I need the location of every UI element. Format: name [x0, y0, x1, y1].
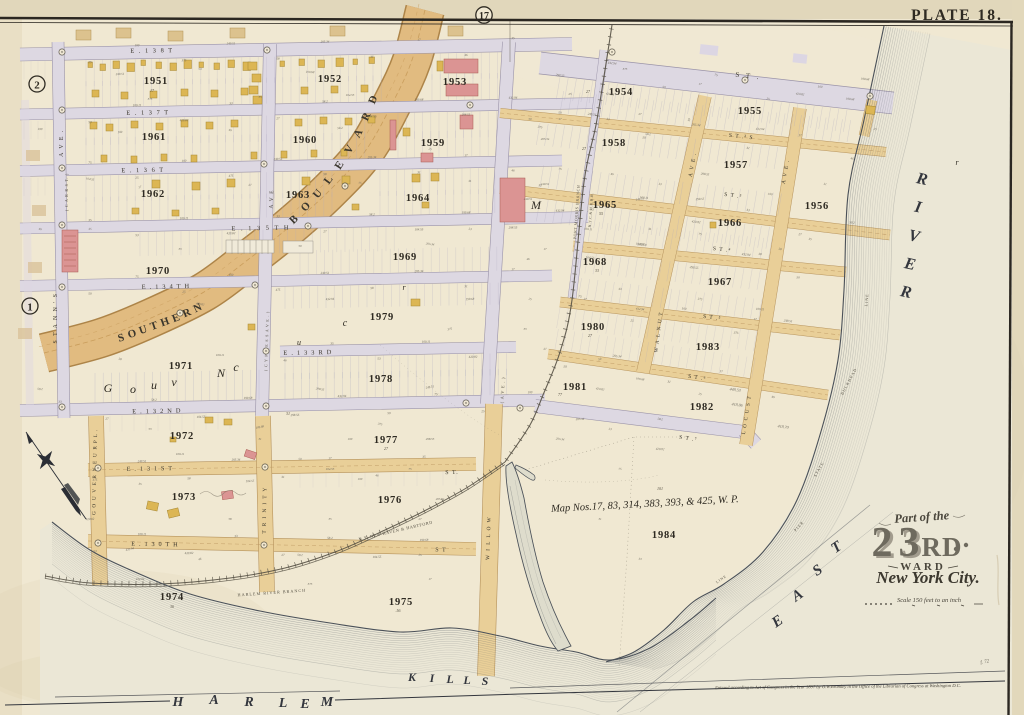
- svg-text:K: K: [407, 670, 417, 684]
- svg-text:35: 35: [422, 455, 426, 459]
- svg-text:New York City.: New York City.: [875, 568, 979, 587]
- svg-text:33: 33: [276, 214, 280, 218]
- svg-text:75: 75: [434, 392, 438, 396]
- svg-text:58.2: 58.2: [297, 553, 303, 557]
- svg-text:1975: 1975: [389, 597, 413, 608]
- svg-text:36: 36: [170, 604, 174, 609]
- svg-text:100: 100: [358, 477, 363, 481]
- svg-text:35: 35: [258, 95, 262, 99]
- svg-text:P L .: P L .: [93, 429, 99, 444]
- svg-text:249.51: 249.51: [138, 459, 147, 463]
- svg-text:53: 53: [135, 233, 139, 237]
- svg-text:33: 33: [595, 268, 599, 273]
- svg-text:1977: 1977: [374, 435, 398, 446]
- svg-text:1984: 1984: [652, 530, 676, 541]
- svg-text:2: 2: [872, 520, 893, 566]
- svg-text:2: 2: [34, 80, 40, 92]
- svg-text:17: 17: [464, 153, 468, 157]
- svg-text:375: 375: [308, 582, 313, 586]
- svg-text:58.2: 58.2: [322, 99, 328, 103]
- svg-text:1983: 1983: [696, 342, 720, 353]
- svg-text:E . 1 3 5 T H: E . 1 3 5 T H: [231, 224, 290, 232]
- svg-text:17: 17: [417, 38, 421, 42]
- svg-text:101: 101: [657, 486, 663, 491]
- svg-text:35: 35: [88, 218, 92, 222]
- svg-text:420.82: 420.82: [656, 447, 665, 451]
- svg-text:17: 17: [328, 456, 332, 460]
- svg-text:50: 50: [88, 292, 92, 296]
- svg-text:L: L: [445, 672, 453, 686]
- svg-text:58: 58: [187, 476, 191, 480]
- svg-text:58.2: 58.2: [327, 536, 333, 540]
- svg-text:298.55: 298.55: [291, 413, 300, 417]
- svg-text:375: 375: [698, 297, 703, 302]
- svg-text:1973: 1973: [172, 492, 196, 503]
- svg-text:75: 75: [135, 275, 139, 279]
- svg-text:1978: 1978: [369, 374, 393, 385]
- svg-text:S T A N N ' S: S T A N N ' S: [53, 293, 59, 344]
- svg-text:31: 31: [370, 55, 374, 59]
- svg-text:53: 53: [377, 357, 381, 361]
- svg-text:1: 1: [27, 302, 33, 314]
- svg-text:25: 25: [88, 60, 92, 64]
- svg-text:104.55: 104.55: [368, 114, 377, 118]
- svg-text:1956: 1956: [805, 201, 829, 212]
- svg-text:1967: 1967: [708, 277, 732, 288]
- svg-text:100: 100: [348, 437, 353, 441]
- svg-text:100: 100: [182, 159, 187, 163]
- svg-text:46: 46: [511, 168, 515, 172]
- svg-text:1970: 1970: [146, 266, 170, 277]
- svg-text:375: 375: [93, 478, 98, 482]
- svg-text:33: 33: [523, 327, 527, 331]
- svg-text:104.55: 104.55: [246, 479, 255, 483]
- svg-text:E . 1 3 1 S T: E . 1 3 1 S T: [127, 465, 174, 473]
- svg-text:104.55: 104.55: [346, 93, 355, 97]
- svg-text:( C A R R S T. ): ( C A R R S T. ): [64, 173, 69, 211]
- svg-text:46: 46: [283, 358, 287, 362]
- svg-text:M: M: [320, 695, 334, 710]
- svg-text:E . 1 3 2 N D: E . 1 3 2 N D: [132, 408, 182, 416]
- svg-text:31: 31: [281, 475, 285, 479]
- svg-text:375: 375: [623, 67, 628, 71]
- svg-text:50: 50: [558, 111, 562, 115]
- svg-text:31: 31: [464, 284, 468, 288]
- svg-text:100: 100: [38, 127, 43, 131]
- svg-text:100.11: 100.11: [133, 103, 142, 107]
- svg-text:199.68: 199.68: [466, 297, 475, 301]
- svg-text:100: 100: [118, 130, 123, 134]
- svg-text:58.2: 58.2: [849, 220, 855, 225]
- svg-text:298.55: 298.55: [509, 225, 518, 229]
- svg-text:31: 31: [258, 437, 262, 441]
- svg-text:46: 46: [464, 53, 468, 57]
- svg-text:S T: S T: [435, 547, 447, 553]
- svg-text:58.2: 58.2: [151, 398, 157, 402]
- svg-text:o: o: [130, 382, 136, 396]
- svg-text:432.94: 432.94: [326, 297, 335, 301]
- svg-text:46: 46: [526, 257, 530, 261]
- svg-text:375: 375: [229, 174, 234, 178]
- svg-text:31: 31: [286, 411, 290, 416]
- svg-text:104.55: 104.55: [326, 467, 335, 471]
- svg-text:205.34: 205.34: [321, 40, 330, 44]
- svg-text:199.68: 199.68: [420, 538, 429, 542]
- svg-text:375: 375: [276, 288, 281, 292]
- svg-text:1955: 1955: [738, 106, 762, 117]
- svg-text:104.55: 104.55: [373, 555, 382, 559]
- svg-text:375: 375: [182, 58, 187, 62]
- svg-text:375: 375: [734, 331, 740, 336]
- svg-text:104.55: 104.55: [197, 415, 206, 419]
- svg-text:1969: 1969: [393, 252, 417, 263]
- svg-text:298.55: 298.55: [696, 197, 705, 201]
- svg-text:249.51: 249.51: [274, 157, 283, 161]
- svg-text:17: 17: [543, 247, 547, 251]
- svg-text:1960: 1960: [293, 135, 317, 146]
- svg-text:420.82: 420.82: [469, 355, 478, 359]
- svg-text:100.11: 100.11: [756, 307, 765, 311]
- svg-text:249.51: 249.51: [116, 72, 125, 76]
- svg-text:375: 375: [148, 97, 153, 101]
- svg-text:420.82: 420.82: [180, 118, 189, 122]
- svg-text:432.94: 432.94: [756, 127, 765, 131]
- svg-text:.56: .56: [396, 608, 401, 613]
- svg-text:1951: 1951: [144, 76, 168, 87]
- svg-text:25: 25: [135, 176, 139, 180]
- svg-text:58: 58: [276, 57, 280, 61]
- svg-text:199.68: 199.68: [306, 70, 315, 74]
- svg-text:249.51: 249.51: [524, 197, 533, 201]
- svg-text:432.94: 432.94: [136, 577, 145, 581]
- svg-text:17: 17: [511, 267, 515, 271]
- svg-text:c: c: [343, 318, 348, 329]
- svg-text:58.2: 58.2: [337, 126, 343, 130]
- svg-text:375: 375: [538, 125, 544, 130]
- svg-text:199.68: 199.68: [415, 97, 424, 101]
- svg-text:1982: 1982: [690, 402, 714, 413]
- svg-text:199.68: 199.68: [462, 210, 471, 214]
- svg-text:205.34: 205.34: [541, 137, 550, 141]
- svg-text:58.2: 58.2: [37, 387, 43, 391]
- svg-text:1971: 1971: [169, 361, 193, 372]
- svg-text:58: 58: [228, 517, 232, 521]
- svg-text:58: 58: [370, 286, 374, 290]
- svg-text:35: 35: [511, 36, 515, 40]
- svg-text:1965: 1965: [593, 200, 617, 211]
- svg-text:100.11: 100.11: [422, 340, 431, 344]
- svg-text:75: 75: [408, 467, 412, 471]
- svg-text:1953: 1953: [443, 77, 467, 88]
- svg-text:205.34: 205.34: [232, 458, 241, 462]
- svg-text:L: L: [278, 696, 288, 711]
- svg-text:53: 53: [93, 549, 97, 553]
- svg-text:1980: 1980: [581, 322, 605, 333]
- svg-text:46: 46: [375, 473, 379, 477]
- svg-text:E: E: [299, 697, 309, 712]
- svg-text:298.55: 298.55: [426, 437, 435, 441]
- svg-text:A: A: [208, 693, 218, 708]
- svg-text:50: 50: [528, 117, 532, 121]
- svg-text:1959: 1959: [421, 138, 445, 149]
- svg-text:53: 53: [148, 427, 152, 431]
- svg-text:31: 31: [598, 517, 602, 521]
- svg-text:1958: 1958: [602, 138, 626, 149]
- svg-text:432.94: 432.94: [556, 208, 565, 212]
- svg-text:432.94: 432.94: [338, 394, 347, 398]
- svg-text:249.51: 249.51: [321, 271, 330, 275]
- svg-text:75: 75: [88, 161, 92, 165]
- svg-text:25: 25: [568, 92, 572, 96]
- svg-text:100: 100: [682, 306, 688, 311]
- svg-text:S: S: [482, 674, 489, 688]
- svg-text:55: 55: [599, 211, 603, 216]
- svg-text:420.82: 420.82: [185, 551, 194, 555]
- svg-text:205.34: 205.34: [576, 417, 585, 421]
- svg-text:1972: 1972: [170, 431, 194, 442]
- svg-text:E . 1 3 0 T H: E . 1 3 0 T H: [131, 541, 179, 549]
- svg-text:A V E .: A V E .: [59, 129, 65, 157]
- svg-text:205.34: 205.34: [368, 155, 377, 159]
- svg-text:27: 27: [281, 553, 285, 557]
- svg-text:v: v: [171, 375, 177, 389]
- svg-text:249.51: 249.51: [227, 41, 236, 45]
- svg-text:1952: 1952: [318, 74, 342, 85]
- svg-text:298.55: 298.55: [462, 113, 471, 117]
- svg-text:100.11: 100.11: [216, 353, 225, 357]
- svg-text:50: 50: [298, 244, 302, 248]
- svg-text:33: 33: [229, 101, 233, 105]
- svg-text:35: 35: [328, 517, 332, 521]
- svg-text:27: 27: [105, 417, 109, 421]
- svg-text:35: 35: [330, 341, 334, 345]
- svg-text:1961: 1961: [142, 132, 166, 143]
- svg-text:1979: 1979: [370, 312, 394, 323]
- svg-text:58: 58: [323, 172, 327, 176]
- svg-text:104.55: 104.55: [415, 227, 424, 231]
- svg-text:58.2: 58.2: [645, 132, 651, 137]
- svg-text:H: H: [172, 695, 185, 710]
- svg-text:100: 100: [768, 192, 773, 197]
- svg-text:33: 33: [58, 400, 62, 404]
- svg-text:E . 1 3 8 T: E . 1 3 8 T: [130, 47, 173, 55]
- svg-text:S T.: S T.: [445, 470, 459, 476]
- svg-text:1966: 1966: [718, 218, 742, 229]
- svg-text:1957: 1957: [724, 160, 748, 171]
- svg-text:1981: 1981: [563, 382, 587, 393]
- svg-text:u: u: [297, 338, 301, 347]
- svg-text:100.11: 100.11: [176, 452, 185, 456]
- svg-text:432.94: 432.94: [509, 96, 518, 100]
- svg-text:100: 100: [528, 390, 533, 394]
- svg-text:205.34: 205.34: [436, 497, 445, 501]
- svg-text:25: 25: [182, 290, 186, 294]
- svg-text:31: 31: [417, 170, 421, 174]
- svg-text:420.82: 420.82: [86, 517, 95, 521]
- svg-text:N: N: [216, 366, 226, 380]
- svg-text:A V E: A V E: [269, 189, 276, 208]
- svg-text:1964: 1964: [406, 193, 430, 204]
- svg-text:1963: 1963: [286, 190, 310, 201]
- svg-text:27: 27: [276, 116, 280, 120]
- svg-text:27: 27: [323, 229, 327, 233]
- svg-text:17: 17: [558, 117, 562, 121]
- svg-text:100.11: 100.11: [138, 532, 147, 536]
- svg-text:100: 100: [229, 273, 234, 277]
- svg-text:E . 1 3 7 T: E . 1 3 7 T: [126, 109, 169, 117]
- svg-text:E . 1 3 6 T: E . 1 3 6 T: [121, 167, 164, 175]
- svg-text:c: c: [233, 360, 239, 374]
- svg-text:205.34: 205.34: [415, 269, 424, 273]
- svg-text:G: G: [104, 381, 113, 395]
- svg-text:1962: 1962: [141, 189, 165, 200]
- svg-text:199.68: 199.68: [244, 396, 253, 400]
- svg-text:Scale 150 feet to an inch: Scale 150 feet to an inch: [897, 597, 961, 604]
- svg-text:100: 100: [135, 43, 140, 47]
- svg-text:u: u: [151, 378, 157, 392]
- svg-text:100: 100: [818, 84, 824, 89]
- svg-text:420.82: 420.82: [227, 231, 236, 235]
- svg-text:17: 17: [428, 577, 432, 581]
- svg-text:25: 25: [481, 409, 485, 413]
- svg-text:33: 33: [178, 247, 182, 251]
- svg-text:27: 27: [638, 112, 642, 116]
- svg-text:33: 33: [234, 534, 238, 538]
- svg-text:27: 27: [418, 517, 422, 521]
- svg-text:100.11: 100.11: [180, 216, 189, 220]
- svg-text:249.51: 249.51: [541, 182, 550, 186]
- svg-text:3: 3: [899, 520, 920, 566]
- svg-text:58.2: 58.2: [369, 212, 375, 216]
- svg-text:1976: 1976: [378, 495, 402, 506]
- svg-text:E . 1 3 3 R D: E . 1 3 3 R D: [283, 349, 332, 357]
- svg-text:L: L: [462, 673, 470, 687]
- svg-text:50: 50: [387, 411, 391, 415]
- svg-text:53: 53: [88, 120, 92, 124]
- svg-text:1974: 1974: [160, 592, 184, 603]
- svg-text:T R I N I T Y: T R I N I T Y: [262, 486, 269, 533]
- svg-text:R: R: [243, 695, 253, 710]
